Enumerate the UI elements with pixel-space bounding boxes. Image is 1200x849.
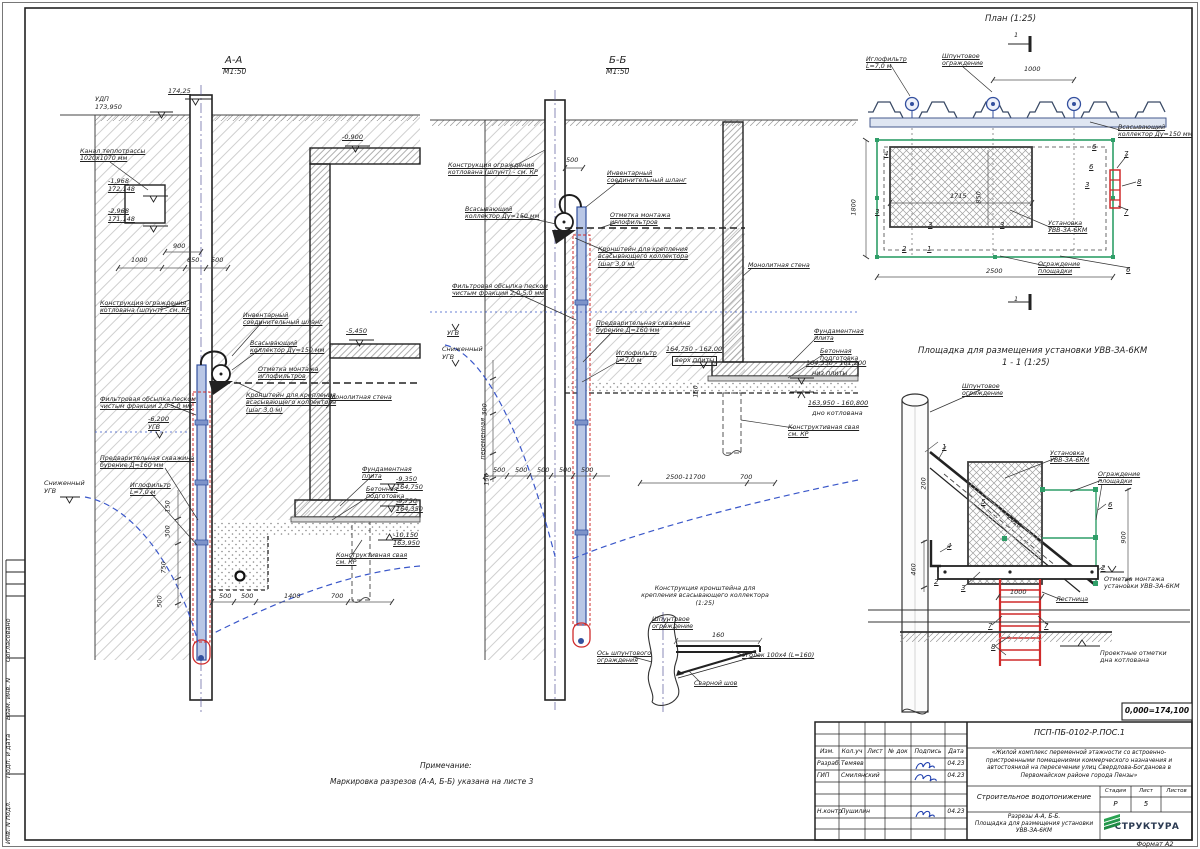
annotation: Шпунтовое ограждение (652, 616, 693, 631)
annotation: 1715 (950, 193, 967, 201)
annotation: 6 (1126, 266, 1130, 274)
annotation: 3 (1000, 221, 1004, 229)
annotation: Шпунтовое ограждение (962, 383, 1003, 398)
date-nkontr: 04.23 (945, 808, 967, 815)
role-gip: ГИП (817, 772, 829, 779)
annotation: 3 (1085, 181, 1089, 189)
annotation: 174,25 (168, 88, 191, 96)
annotation: 3 (875, 208, 879, 216)
annotation: М1:50 (223, 68, 246, 77)
annotation: 300 (164, 525, 172, 537)
annotation: Ось шпунтового ограждения (597, 650, 651, 665)
annotation: 1 (942, 443, 946, 451)
annotation: Кронштейн для крепления всасывающего кол… (246, 392, 336, 414)
annotation: 2500 (986, 268, 1003, 276)
annotation: Отметка монтажа установки УВВ-ЗА-6КМ (1104, 576, 1180, 591)
structura-logo: СТРУКТУРА (1102, 813, 1192, 840)
annotation: Кронштейн для крепления всасывающего кол… (598, 246, 688, 268)
sheet-label: Лист (1131, 788, 1161, 795)
annotation: 7 (988, 622, 992, 630)
annotation: 500 (156, 595, 164, 607)
annotation: 4 (884, 150, 888, 158)
annotation: Инвентарный соединительный шланг (243, 312, 322, 327)
annotation: Иглофильтр L=7,0 м (130, 482, 171, 497)
annotation: 150 (164, 500, 172, 512)
annotation: 200 (920, 477, 928, 489)
annotation: 7 (1124, 150, 1128, 158)
annotation: 500 (219, 593, 231, 601)
annotation: Шпунтовое ограждение (942, 53, 983, 68)
side-strip-label: Взам. инв. N (4, 678, 12, 720)
annotation: 500 (566, 157, 578, 165)
annotation: УГВ (447, 330, 459, 338)
role-nkontr: Н.контр. (817, 808, 844, 815)
annotation: 1000 (131, 257, 148, 265)
date-razrab: 04.23 (945, 760, 967, 767)
annotation: Предварительная скважина бурение Д=160 м… (596, 320, 690, 335)
annotation: 6 (1108, 501, 1112, 509)
annotation: 500 (515, 467, 527, 475)
annotation: Ограждение площадки (1038, 261, 1080, 276)
role-razrab: Разраб. (817, 760, 841, 767)
annotation: Фундаментная плита (814, 328, 864, 343)
annotation: 2500-11700 (666, 474, 706, 482)
annotation: 900 (173, 243, 185, 251)
col-podpis: Подпись (911, 748, 945, 755)
col-data: Дата (945, 748, 967, 755)
drawing-sheet: А-АМ1:50174,25УДП 173,950Канал теплотрас… (0, 0, 1200, 849)
name-nkontr: Пушилин (841, 808, 909, 815)
annotation: 1 (927, 245, 931, 253)
date-gip: 04.23 (945, 772, 967, 779)
annotation: 2 (902, 245, 906, 253)
col-ndok: № док (885, 748, 911, 755)
annotation: -9,350 164,750 (396, 476, 423, 491)
stage-value: Р (1100, 800, 1131, 808)
annotation: Всасывающий коллектор Ду=150 мм (1118, 124, 1192, 139)
annotation: 700 (331, 593, 343, 601)
drawing-linework (0, 0, 1200, 849)
annotation: План (1:25) (985, 14, 1036, 24)
annotation: Всасывающий коллектор Ду=150 мм (250, 340, 324, 355)
annotation: 2 (1101, 564, 1105, 572)
annotation: -9,750 164,350 (396, 498, 423, 513)
annotation: 1 (1014, 296, 1018, 304)
annotation: 1400 (284, 593, 301, 601)
annotation: 4 (947, 542, 951, 550)
annotation: Сварной шов (694, 680, 737, 687)
annotation: верх плиты (672, 356, 717, 366)
sheets-label: Листов (1161, 788, 1192, 795)
annotation: 7 (1124, 208, 1128, 216)
format-label: Формат А2 (1118, 841, 1192, 849)
col-list: Лист (865, 748, 885, 755)
annotation: 700 (740, 474, 752, 482)
annotation: Конструкция ограждения котлована (шпунт)… (100, 300, 190, 315)
annotation: 3 (928, 221, 932, 229)
annotation: Примечание: (420, 762, 472, 771)
annotation: 460 (910, 563, 918, 575)
annotation: 163,950 - 160,800 (808, 400, 868, 408)
annotation: Отметка монтажа иглофильтров (610, 212, 670, 227)
annotation: 1 (1014, 32, 1018, 40)
annotation: Предварительная скважина бурение Д=160 м… (100, 455, 194, 470)
annotation: М1:50 (606, 68, 629, 77)
annotation: Уголок 100х4 (L=160) (742, 652, 814, 659)
side-strip-label: Согласовано (4, 618, 12, 662)
annotation: 3 (961, 584, 965, 592)
annotation: низ плиты (812, 370, 848, 378)
annotation: 500 (211, 257, 223, 265)
annotation: Всасывающий коллектор Ду=150 мм (465, 206, 539, 221)
annotation: 5 (981, 498, 985, 506)
annotation: Конструкция ограждения котлована (шпунт)… (448, 162, 538, 177)
annotation: Монолитная стена (748, 262, 810, 269)
side-strip-label: Инв. N подл. (4, 801, 12, 844)
document-number: ПСП-ПБ-0102-Р.ПОС.1 (967, 728, 1192, 738)
annotation: 1800 (850, 199, 858, 216)
annotation: Установка УВВ-ЗА-6КМ (1050, 450, 1089, 465)
annotation: 6 (1092, 143, 1096, 151)
name-gip: Смилянский (841, 772, 909, 779)
annotation: 750 (160, 561, 168, 573)
annotation: -2,968 171,148 (108, 208, 135, 223)
annotation: 160 (712, 632, 724, 640)
sheet-value: 5 (1131, 800, 1161, 808)
annotation: 7 (1044, 622, 1048, 630)
annotation: дно котлована (812, 410, 863, 418)
annotation: 500 (537, 467, 549, 475)
annotation: Иглофильтр L=7,0 м (866, 56, 907, 71)
annotation: Ограждение площадки (1098, 471, 1140, 486)
project-name: «Жилой комплекс переменной этажности со … (970, 750, 1188, 780)
annotation: Лестница (1056, 596, 1088, 603)
annotation: Сниженный УГВ (44, 480, 85, 495)
annotation: 6 (1089, 163, 1093, 171)
annotation: 500 (559, 467, 571, 475)
annotation: -0,900 (342, 134, 363, 142)
annotation: 164,750 - 162,00 (666, 346, 722, 354)
annotation: переменная (479, 418, 487, 460)
datum-elevation: 0,000=174,100 (1122, 706, 1192, 715)
annotation: 500 (581, 467, 593, 475)
logo-text: СТРУКТУРА (1115, 822, 1180, 832)
annotation: Иглофильтр L=7,0 м (616, 350, 657, 365)
annotation: УДП 173,950 (95, 96, 122, 111)
annotation: -6,200 УГВ (148, 416, 169, 431)
annotation: 850 (975, 191, 983, 203)
document-subject: Строительное водопонижение (969, 793, 1099, 801)
annotation: Конструктивная свая см. КР (788, 424, 859, 439)
annotation: Бетонная подготовка (820, 348, 858, 363)
annotation: Маркировка разрезов (А-А, Б-Б) указана н… (330, 778, 533, 787)
annotation: 300 (481, 403, 489, 415)
annotation: 1 - 1 (1:25) (1002, 358, 1050, 368)
annotation: Инвентарный соединительный шланг (607, 170, 686, 185)
sheet-title: Разрезы А-А, Б-Б. Площадка для размещени… (969, 814, 1099, 836)
annotation: Конструктивная свая см. КР (336, 552, 407, 567)
annotation: Отметка монтажа иглофильтров (258, 366, 318, 381)
annotation: 150 (483, 473, 491, 485)
annotation: Установка УВВ-ЗА-6КМ (1048, 220, 1087, 235)
annotation: 1000 (1024, 66, 1041, 74)
col-izm: Изм. (815, 748, 839, 755)
annotation: -10,150 163,950 (393, 532, 420, 547)
annotation: Канал теплотрассы 1020х1070 мм (80, 148, 145, 163)
annotation: -1,968 172,148 (108, 178, 135, 193)
annotation: Сниженный УГВ (442, 346, 483, 361)
annotation: Монолитная стена (330, 394, 392, 401)
side-strip-label: Подп. и дата (4, 734, 12, 778)
annotation: Фильтровая обсыпка песком чистым фракции… (452, 283, 548, 298)
annotation: 500 (493, 467, 505, 475)
annotation: -5,450 (346, 328, 367, 336)
annotation: 900 (1120, 531, 1128, 543)
name-razrab: Темяев (841, 760, 909, 767)
logo-chevron-icon (1102, 813, 1122, 831)
stage-label: Стадия (1100, 788, 1131, 795)
annotation: 8 (991, 643, 995, 651)
annotation: Фильтровая обсыпка песком чистым фракции… (100, 396, 196, 411)
annotation: 1000 (1010, 589, 1027, 597)
annotation: Площадка для размещения установки УВВ-ЗА… (918, 346, 1147, 356)
annotation: Конструкция кронштейна для крепления вса… (630, 585, 780, 607)
annotation: 650 (187, 257, 199, 265)
annotation: 500 (241, 593, 253, 601)
annotation: 150 (692, 385, 700, 397)
annotation: 2 (934, 578, 938, 586)
annotation: Проектные отметки дна котлована (1100, 650, 1167, 665)
col-koluch: Кол.уч (839, 748, 865, 755)
annotation: 8 (1137, 178, 1141, 186)
